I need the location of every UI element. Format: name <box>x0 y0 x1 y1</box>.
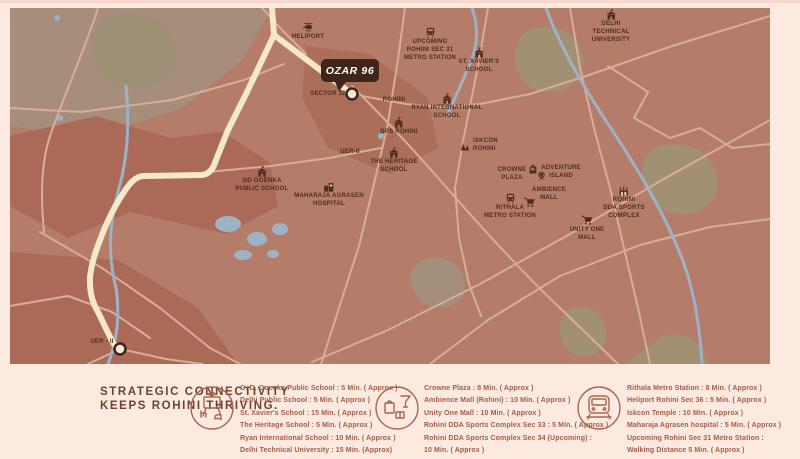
list-item: Delhi Technical University : 15 Min. (Ap… <box>240 445 398 457</box>
stadium-icon <box>619 185 630 196</box>
map-marker-unity-one-mall: UNITY ONE MALL <box>570 215 605 243</box>
list-item: Ryan International School : 10 Min. ( Ap… <box>240 433 398 445</box>
map-marker-uer2: UER-II <box>340 149 360 157</box>
map-marker-st-xaviers-school: ST. XAVIER'S SCHOOL <box>459 47 500 75</box>
map-marker-sector-32: SECTOR 32 <box>310 91 345 99</box>
school-icon <box>605 9 616 20</box>
helicopter-icon <box>303 22 314 33</box>
map-label: UNITY ONE MALL <box>570 227 605 243</box>
map-marker-rohini-dda-sports-complex: ROHINI DDA SPORTS COMPLEX <box>603 185 645 220</box>
map-marker-heritage-school: THE HERITAGE SCHOOL <box>370 147 417 175</box>
footer: STRATEGIC CONNECTIVITY KEEPS ROHINI THRI… <box>0 364 800 459</box>
leisure-doodle-icon <box>374 385 420 431</box>
list-item: 10 Min. ( Approx ) <box>424 445 608 457</box>
map-label: ISKCON ROHINI <box>473 138 498 154</box>
list-item: Rithala Metro Station : 8 Min. ( Approx … <box>627 383 781 395</box>
school-icon <box>388 147 399 158</box>
education-doodle-icon <box>189 385 235 431</box>
map-marker-maharaja-agrasen-hospital: MAHARAJA AGRASEN HOSPITAL <box>294 181 364 209</box>
project-name: OZAR 96 <box>326 65 375 77</box>
map-marker-rithala-metro: RITHALA METRO STATION <box>484 193 536 221</box>
map-label: SECTOR 32 <box>310 91 345 99</box>
hospital-icon <box>324 181 335 192</box>
map-marker-ambience-mall: AMBIENCE MALL <box>532 187 566 203</box>
temple-icon <box>460 140 471 151</box>
map-label: ST. XAVIER'S SCHOOL <box>459 59 500 75</box>
map-label: CROWNE PLAZA <box>498 167 527 183</box>
map-label: DPS ROHINI <box>380 129 418 137</box>
transit-doodle-icon <box>576 385 622 431</box>
map-marker-dps-rohini: DPS ROHINI <box>380 117 418 137</box>
shopping-cart-icon <box>582 215 593 226</box>
map-marker-crowne-plaza: CROWNE PLAZA <box>498 167 527 183</box>
transit-list: Rithala Metro Station : 8 Min. ( Approx … <box>627 383 781 457</box>
uer2-ring <box>115 344 126 355</box>
map-graphic <box>10 8 770 364</box>
list-item: Iskcon Temple : 10 Min. ( Approx ) <box>627 408 781 420</box>
map-label: ADVENTURE ISLAND <box>541 165 581 181</box>
ozar-site-ring <box>347 89 358 100</box>
map-label: ROHINI <box>383 97 406 105</box>
map-label: AMBIENCE MALL <box>532 187 566 203</box>
school-icon <box>393 117 404 128</box>
list-item: Upcoming Rohini Sec 31 Metro Station : <box>627 433 781 445</box>
map-panel: HELIPORT UPCOMING ROHINI SEC 31 METRO ST… <box>10 8 770 364</box>
list-item: Rohini DDA Sports Complex Sec 34 (Upcomi… <box>424 433 608 445</box>
list-item: Heliport Rohini Sec 36 : 5 Min. ( Approx… <box>627 395 781 407</box>
map-label: UER - II <box>90 339 113 347</box>
map-marker-delhi-technical-university: DELHI TECHNICAL UNIVERSITY <box>592 9 631 44</box>
list-item: Walking Distance 5 Min. ( Approx ) <box>627 445 781 457</box>
school-icon <box>441 93 452 104</box>
ozar-96-badge: OZAR 96 <box>321 59 379 82</box>
map-label: GD GOENKA PUBLIC SCHOOL <box>236 178 289 194</box>
map-marker-heliport: HELIPORT <box>292 22 324 42</box>
map-marker-iskcon-rohini: ISKCON ROHINI <box>460 138 498 154</box>
map-marker-rohini: ROHINI <box>383 97 406 105</box>
map-label: DELHI TECHNICAL UNIVERSITY <box>592 21 631 44</box>
school-icon <box>256 166 267 177</box>
map-marker-uer2-south: UER - II <box>90 339 113 347</box>
list-item: Maharaja Agrasen hospital : 5 Min. ( App… <box>627 420 781 432</box>
map-label: ROHINI DDA SPORTS COMPLEX <box>603 197 645 220</box>
map-marker-adventure-island: ADVENTURE ISLAND <box>541 165 581 181</box>
connectivity-map-page: HELIPORT UPCOMING ROHINI SEC 31 METRO ST… <box>0 0 800 459</box>
school-icon <box>473 47 484 58</box>
map-marker-ryan-international-school: RYAN INTERNATIONAL SCHOOL <box>412 93 483 121</box>
map-label: UPCOMING ROHINI SEC 31 METRO STATION <box>404 39 456 62</box>
map-marker-gd-goenka-school: GD GOENKA PUBLIC SCHOOL <box>236 166 289 194</box>
map-marker-upcoming-metro: UPCOMING ROHINI SEC 31 METRO STATION <box>404 27 456 62</box>
metro-icon <box>505 193 516 204</box>
map-label: RITHALA METRO STATION <box>484 205 536 221</box>
map-label: HELIPORT <box>292 34 324 42</box>
map-label: RYAN INTERNATIONAL SCHOOL <box>412 105 483 121</box>
metro-icon <box>425 27 436 38</box>
map-label: MAHARAJA AGRASEN HOSPITAL <box>294 193 364 209</box>
map-label: UER-II <box>340 149 360 157</box>
map-label: THE HERITAGE SCHOOL <box>370 159 417 175</box>
